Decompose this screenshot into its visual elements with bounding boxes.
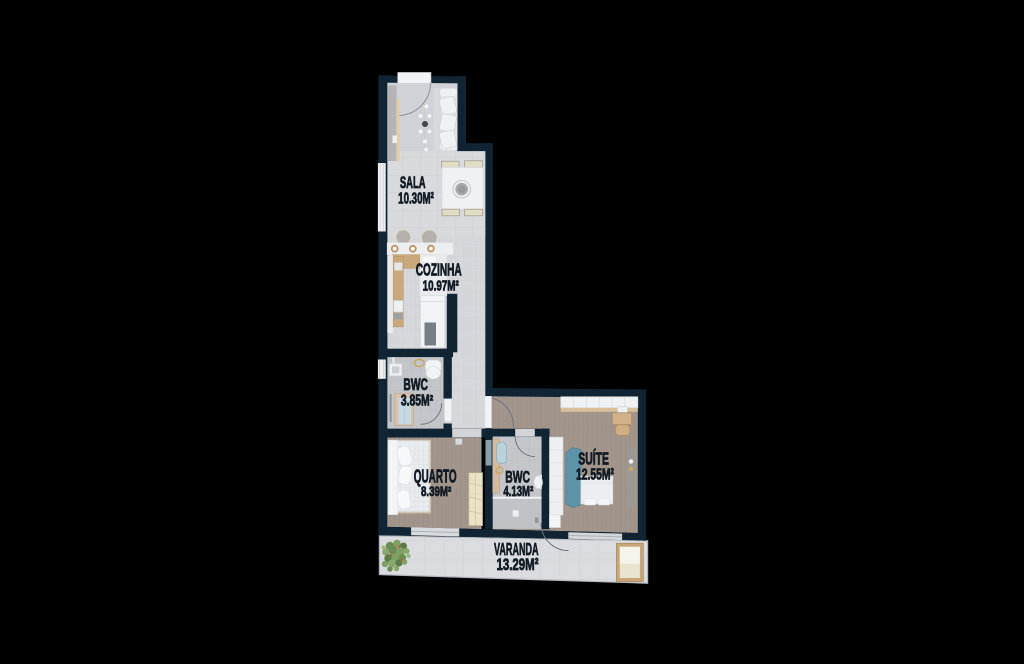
svg-text:8.39M²: 8.39M²	[421, 483, 451, 499]
svg-text:4.13M²: 4.13M²	[503, 483, 533, 500]
svg-text:13.29M²: 13.29M²	[496, 556, 538, 575]
svg-text:3.85M²: 3.85M²	[401, 391, 434, 409]
svg-text:10.97M²: 10.97M²	[423, 278, 459, 294]
svg-text:10.30M²: 10.30M²	[398, 189, 434, 207]
svg-text:COZINHA: COZINHA	[416, 260, 462, 279]
svg-text:12.55M²: 12.55M²	[576, 465, 614, 483]
